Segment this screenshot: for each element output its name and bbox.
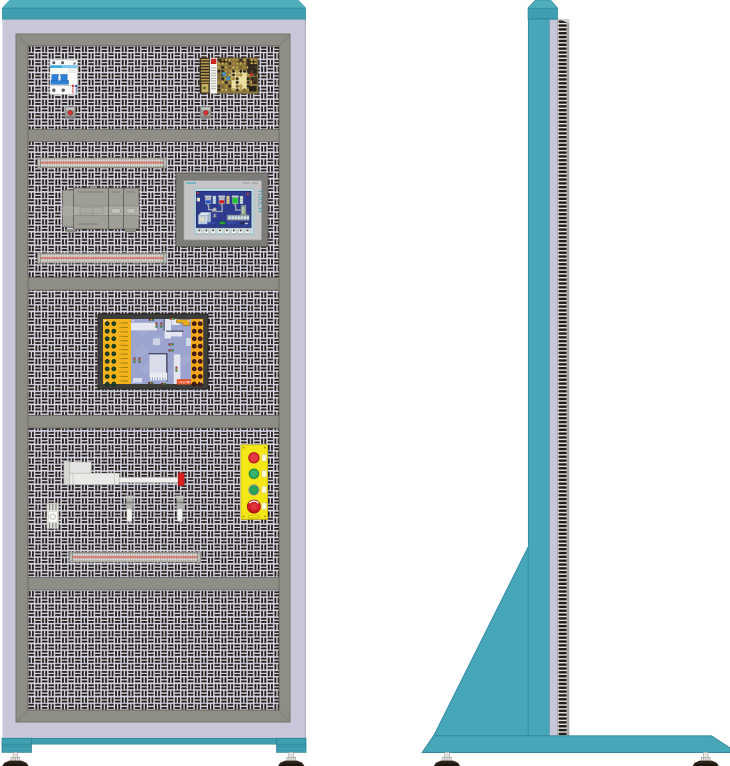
svg-text:VIGOR: VIGOR <box>178 380 189 384</box>
svg-text:TOUCH: TOUCH <box>256 189 263 213</box>
